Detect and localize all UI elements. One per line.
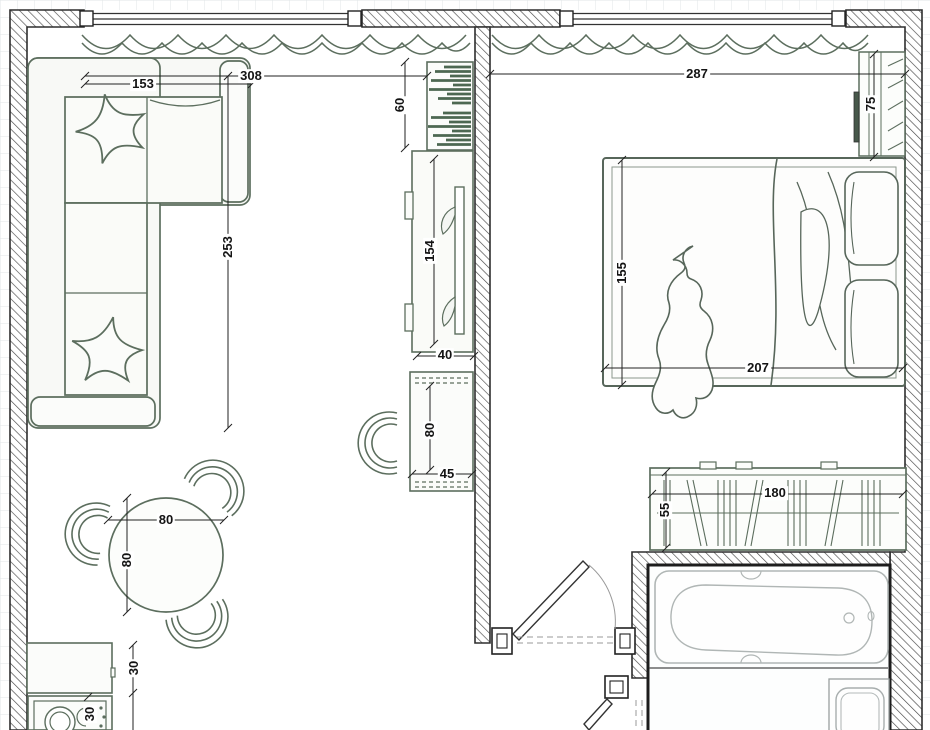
dim-label-wardrobe-length: 180 xyxy=(762,486,788,500)
cabinet-handle xyxy=(405,304,413,331)
dim-label-bed-width: 155 xyxy=(615,260,629,286)
kitchen-counter xyxy=(27,643,112,693)
dim-label-table-depth: 80 xyxy=(120,551,134,569)
window-frame-block xyxy=(832,11,845,26)
dim-label-table-width: 80 xyxy=(157,513,175,527)
sofa-armrest xyxy=(31,397,155,426)
tv-icon xyxy=(455,187,464,334)
dim-label-washer-width: 30 xyxy=(83,705,97,723)
wall-top-pier xyxy=(362,10,560,27)
dim-label-tv-unit: 154 xyxy=(423,238,437,264)
window-frame-block xyxy=(560,11,573,26)
wardrobe-handle xyxy=(821,462,837,469)
bathtub xyxy=(655,571,888,663)
counter-handle xyxy=(111,668,115,677)
dim-label-living-width: 308 xyxy=(238,69,264,83)
dim-label-desk-depth: 45 xyxy=(438,467,456,481)
dim-label-wardrobe-depth: 55 xyxy=(658,501,672,519)
window-frame-block xyxy=(348,11,361,26)
cabinet-handle xyxy=(405,192,413,219)
dim-label-sofa-depth: 253 xyxy=(221,234,235,260)
window-frame-block xyxy=(80,11,93,26)
dim-label-counter-depth: 30 xyxy=(127,659,141,677)
kitchen-counter-block xyxy=(27,643,115,730)
bathroom xyxy=(648,565,890,730)
wardrobe-handle xyxy=(736,462,752,469)
dim-label-sofa-length: 153 xyxy=(130,77,156,91)
floor-plan-drawing xyxy=(0,0,930,730)
tv-icon xyxy=(854,92,859,142)
dim-label-desk-length: 80 xyxy=(423,421,437,439)
sliding-wardrobe xyxy=(650,462,906,550)
wall-divider xyxy=(475,27,490,643)
floor-plan: 153 308 253 60 154 40 80 45 80 80 30 30 … xyxy=(0,0,930,730)
dim-label-shelf-unit: 60 xyxy=(393,96,407,114)
double-bed xyxy=(603,158,905,418)
dim-label-bed-length: 207 xyxy=(745,361,771,375)
dim-label-bedroom-cabinet: 75 xyxy=(864,95,878,113)
dim-label-bedroom-width: 287 xyxy=(684,67,710,81)
washer-drum-icon xyxy=(45,707,75,730)
wardrobe-handle xyxy=(700,462,716,469)
dim-label-unit-gap: 40 xyxy=(436,348,454,362)
bedroom-cabinet xyxy=(854,52,905,156)
sink xyxy=(829,679,889,730)
